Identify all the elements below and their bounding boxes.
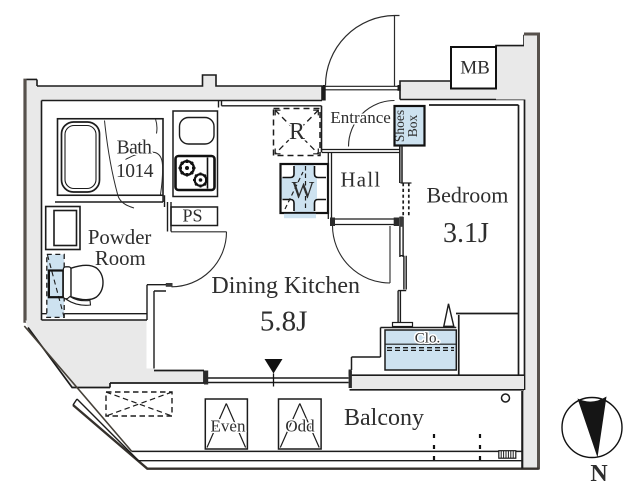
svg-text:N: N (590, 461, 608, 487)
svg-text:Dining Kitchen: Dining Kitchen (211, 273, 360, 299)
svg-text:W: W (292, 178, 315, 204)
svg-text:Clo.: Clo. (415, 330, 440, 346)
svg-text:MB: MB (460, 58, 490, 79)
svg-text:Balcony: Balcony (344, 405, 424, 431)
svg-text:3.1J: 3.1J (443, 218, 489, 249)
svg-text:Box: Box (405, 115, 420, 138)
svg-text:PS: PS (182, 206, 202, 226)
svg-text:R: R (289, 119, 305, 145)
svg-text:Hall: Hall (340, 168, 381, 191)
svg-text:Odd: Odd (285, 417, 315, 436)
svg-text:Bath: Bath (117, 138, 153, 159)
svg-text:Entrance: Entrance (330, 108, 390, 127)
svg-text:Even: Even (211, 417, 246, 436)
svg-text:1014: 1014 (116, 161, 154, 182)
svg-text:Room: Room (95, 247, 146, 270)
svg-text:Bedroom: Bedroom (426, 182, 508, 207)
svg-text:5.8J: 5.8J (260, 306, 308, 338)
svg-text:Powder: Powder (88, 226, 152, 249)
